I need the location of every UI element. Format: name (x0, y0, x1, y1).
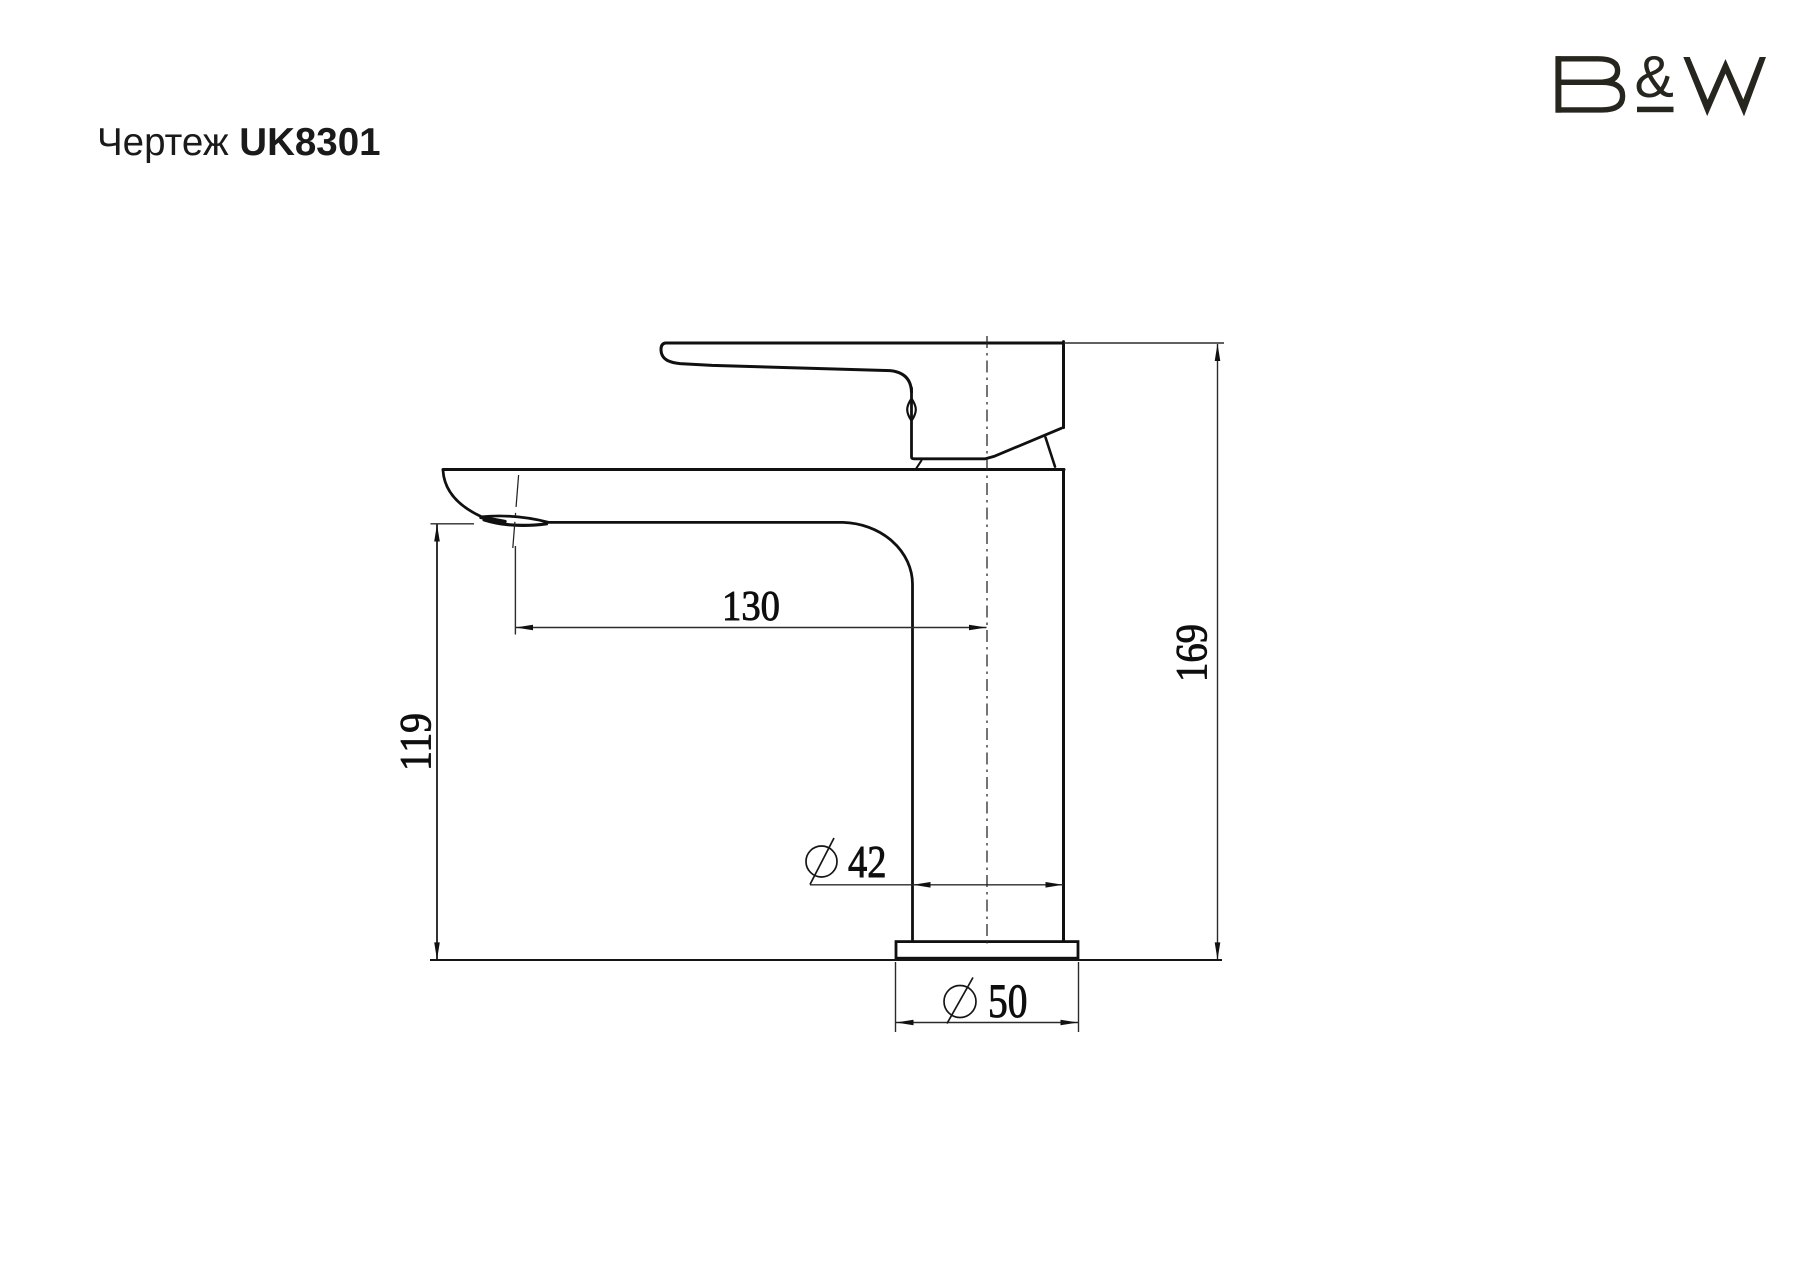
svg-text:Чертеж UK8301: Чертеж UK8301 (97, 121, 381, 164)
svg-text:169: 169 (1167, 624, 1216, 682)
svg-text:42: 42 (848, 836, 887, 887)
svg-text:130: 130 (722, 584, 780, 630)
svg-text:50: 50 (988, 975, 1028, 1028)
svg-text:&: & (1635, 44, 1674, 110)
svg-text:119: 119 (391, 713, 440, 771)
